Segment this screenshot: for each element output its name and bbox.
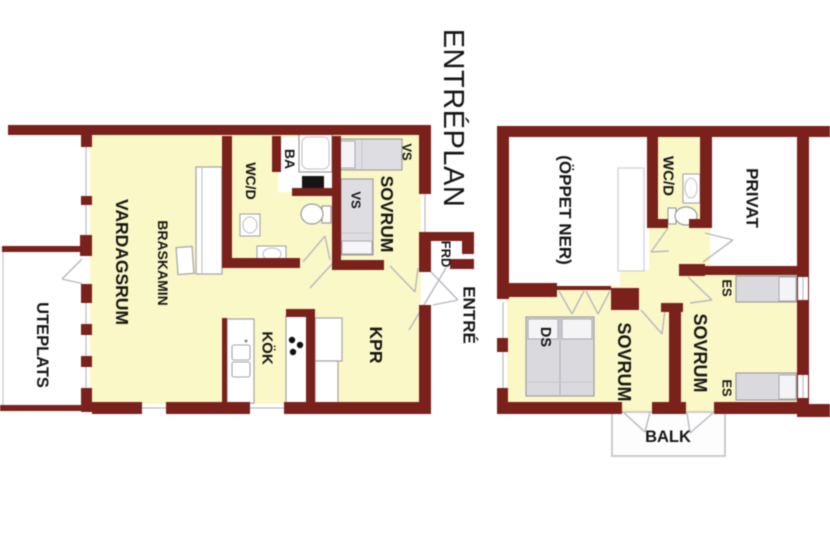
svg-text:VARDAGSRUM: VARDAGSRUM bbox=[112, 199, 132, 325]
svg-text:(ÖPPET NER): (ÖPPET NER) bbox=[556, 155, 575, 265]
svg-text:ENTRÉPLAN: ENTRÉPLAN bbox=[437, 29, 470, 208]
svg-text:BALK: BALK bbox=[645, 428, 691, 446]
svg-text:BA: BA bbox=[282, 149, 298, 169]
svg-text:UTEPLATS: UTEPLATS bbox=[33, 302, 51, 388]
svg-text:VS: VS bbox=[349, 191, 364, 209]
svg-text:VS: VS bbox=[400, 143, 415, 161]
svg-text:ENTRÉ: ENTRÉ bbox=[460, 286, 479, 344]
svg-text:FRD: FRD bbox=[439, 241, 454, 268]
svg-text:PRIVAT: PRIVAT bbox=[743, 168, 762, 228]
svg-text:BRASKAMIN: BRASKAMIN bbox=[155, 220, 171, 306]
svg-text:ES: ES bbox=[720, 279, 735, 297]
svg-text:WC/D: WC/D bbox=[243, 162, 259, 199]
svg-text:SOVRUM: SOVRUM bbox=[614, 322, 634, 401]
svg-text:SOVRUM: SOVRUM bbox=[690, 313, 710, 392]
svg-text:ES: ES bbox=[720, 379, 735, 397]
svg-text:KPR: KPR bbox=[366, 327, 386, 364]
svg-text:WC/D: WC/D bbox=[660, 156, 677, 196]
svg-text:SOVRUM: SOVRUM bbox=[377, 176, 397, 253]
svg-text:DS: DS bbox=[537, 327, 553, 347]
svg-text:KÖK: KÖK bbox=[259, 331, 276, 365]
